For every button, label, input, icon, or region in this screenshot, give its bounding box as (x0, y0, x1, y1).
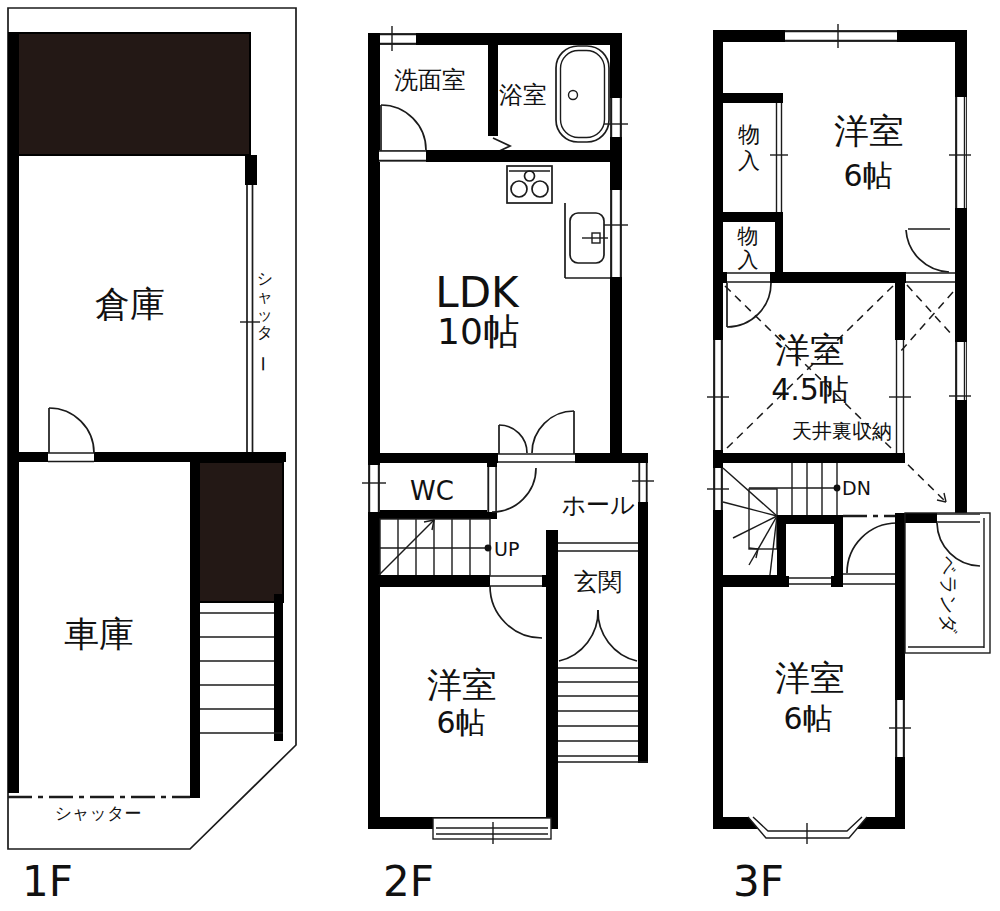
room-label-f3n-yoshitsu: 洋室 (834, 111, 904, 151)
room-label-f3c-size: 4.5帖 (771, 372, 849, 407)
label-attic-storage: 天井裏収納 (792, 419, 892, 443)
floor-2f: UP (362, 26, 654, 906)
f3-window-stair (707, 468, 729, 510)
f2-porch-steps (558, 668, 648, 762)
label-dn: DN (842, 477, 871, 499)
f2-window-hall (632, 463, 654, 502)
f3-window-mid (889, 340, 911, 453)
f2-bay-window (433, 818, 551, 844)
f1-stairs (200, 594, 283, 741)
f3-closet2-door (727, 273, 771, 328)
f2-window-top (380, 26, 416, 51)
room-label-senmenshitsu: 洗面室 (394, 66, 466, 94)
room-label-souko: 倉庫 (95, 284, 165, 324)
f2-wc-door (488, 467, 537, 512)
f3-closet1-slider (770, 103, 788, 212)
f2-entrance-door (559, 610, 637, 661)
f3-hall-closet (777, 515, 843, 587)
f2-stove (507, 166, 552, 203)
label-shutter-right: シャッター (253, 269, 273, 372)
room-label-ldk: LDK (435, 268, 520, 317)
f3-window-45room (707, 340, 729, 450)
label-veranda: ベランダ (938, 556, 960, 634)
f2-bathtub (556, 46, 609, 142)
room-label-f3c-yoshitsu: 洋室 (775, 330, 845, 370)
f2-window-wc (362, 465, 386, 512)
f2-washroom-door (379, 105, 426, 162)
label-shutter-bottom: シャッター (55, 803, 142, 823)
label-up: UP (494, 538, 519, 560)
f1-dark-area-lower (192, 462, 283, 602)
f3-window-ne (949, 97, 971, 208)
room-label-ldk-size: 10帖 (437, 311, 519, 352)
f3-bedroom-south-door (843, 523, 897, 585)
room-label-monoire-2: 物入 (737, 224, 759, 272)
room-label-f3s-size: 6帖 (783, 701, 832, 736)
room-label-f2-yoshitsu-size: 6帖 (436, 705, 485, 740)
room-label-f3s-yoshitsu: 洋室 (775, 658, 845, 698)
f2-stairs: UP (378, 519, 519, 576)
floor-3f: DN (707, 24, 990, 906)
f2-window-kitchen (604, 190, 628, 277)
f3-window-se (889, 700, 911, 757)
room-label-f2-yoshitsu: 洋室 (427, 665, 497, 705)
floor-label-1f: 1F (22, 857, 73, 906)
floorplan-svg: 倉庫 車庫 シャッター シャッター 1F (0, 0, 1000, 911)
room-label-f3n-size: 6帖 (843, 158, 892, 193)
floor-1f: 倉庫 車庫 シャッター シャッター 1F (8, 8, 296, 906)
room-label-genkan: 玄関 (574, 568, 622, 596)
room-label-hall: ホール (561, 491, 635, 519)
f2-window-bath (604, 98, 628, 137)
f3-bedroom-north-door (906, 229, 955, 283)
room-label-yokushitsu: 浴室 (499, 81, 547, 109)
room-label-wc: WC (410, 476, 454, 506)
f2-bedroom-door (490, 576, 542, 639)
room-label-monoire-1: 物入 (738, 122, 760, 173)
f2-sink (565, 203, 610, 278)
f2-ldk-double-door (498, 411, 575, 463)
room-label-shako: 車庫 (64, 614, 134, 654)
floor-label-3f: 3F (733, 857, 784, 906)
floor-label-2f: 2F (383, 857, 434, 906)
f3-bay-window (748, 817, 867, 844)
floorplan-page: 倉庫 車庫 シャッター シャッター 1F (0, 0, 1000, 911)
f1-door-arc (49, 408, 94, 453)
f1-dark-area-top (9, 33, 250, 155)
f3-window-top (785, 24, 897, 48)
f3-window-corridor (949, 342, 971, 400)
